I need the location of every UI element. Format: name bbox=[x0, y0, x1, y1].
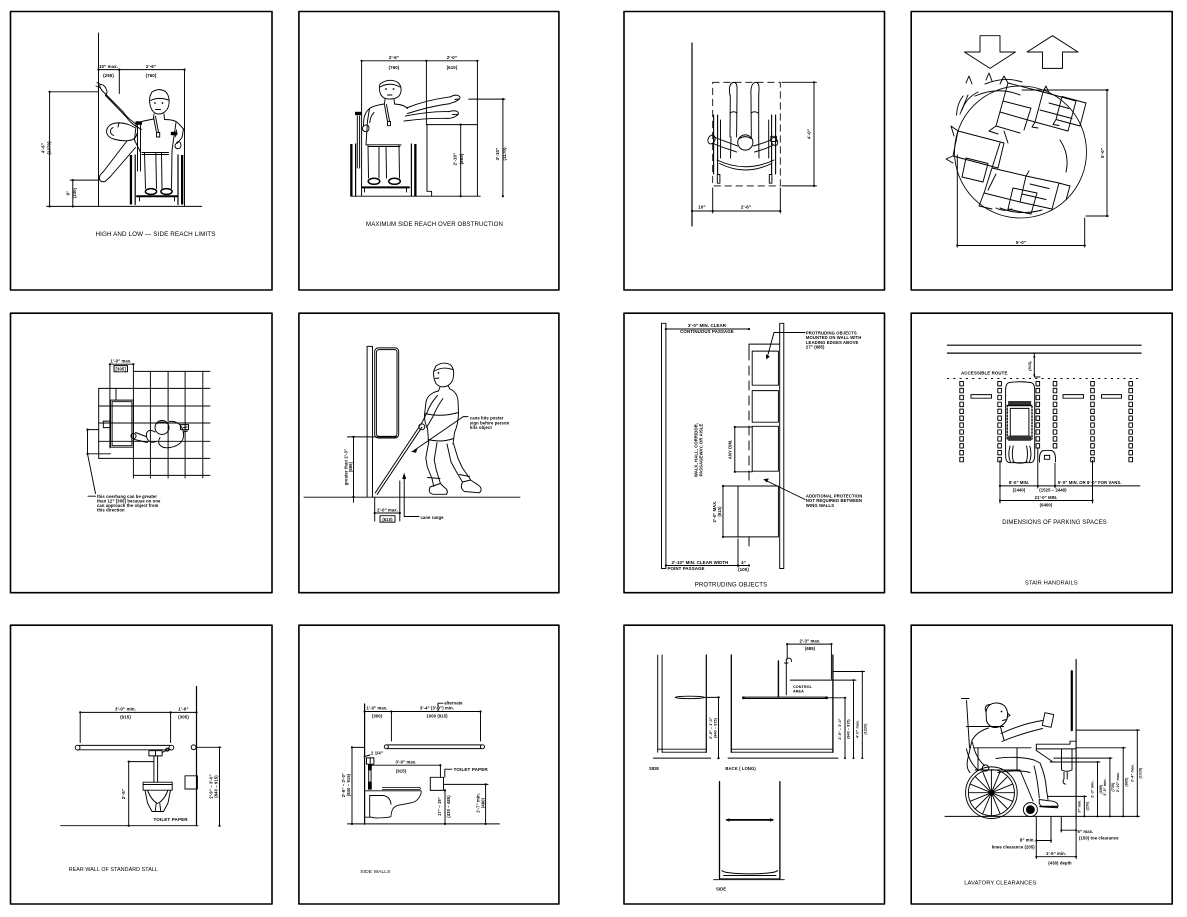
svg-text:SIDE: SIDE bbox=[649, 766, 659, 771]
svg-text:17” – 19”: 17” – 19” bbox=[437, 797, 442, 816]
svg-text:hits object: hits object bbox=[470, 425, 493, 430]
svg-text:4”: 4” bbox=[741, 560, 746, 565]
svg-text:2’-5”: 2’-5” bbox=[121, 789, 126, 799]
svg-text:4’-0” max.: 4’-0” max. bbox=[856, 720, 860, 738]
svg-text:DIMENSIONS OF PARKING SPACES: DIMENSIONS OF PARKING SPACES bbox=[1002, 520, 1107, 526]
svg-text:TOILET PAPER: TOILET PAPER bbox=[454, 767, 489, 772]
svg-text:(300): (300) bbox=[372, 713, 383, 718]
svg-text:8’-0” MIN.: 8’-0” MIN. bbox=[1009, 480, 1029, 485]
svg-text:(915): (915) bbox=[120, 715, 131, 720]
svg-text:1’-0”: 1’-0” bbox=[178, 707, 188, 712]
svg-text:SIDE WALLS: SIDE WALLS bbox=[360, 869, 391, 875]
svg-text:(610): (610) bbox=[382, 517, 393, 522]
svg-text:(840 – 915): (840 – 915) bbox=[213, 775, 218, 798]
svg-text:2’-5” min.: 2’-5” min. bbox=[1103, 778, 1107, 795]
svg-text:(1370): (1370) bbox=[47, 141, 52, 155]
svg-text:ACCESSIBLE ROUTE: ACCESSIBLE ROUTE bbox=[961, 371, 1008, 376]
svg-text:(915): (915) bbox=[396, 768, 407, 773]
svg-text:alternate: alternate bbox=[444, 701, 463, 706]
svg-text:2 1/4”: 2 1/4” bbox=[371, 751, 383, 756]
svg-text:ANY DIM.: ANY DIM. bbox=[728, 440, 733, 460]
svg-text:3’-0” min.: 3’-0” min. bbox=[115, 707, 136, 712]
svg-text:8” min.: 8” min. bbox=[1020, 837, 1035, 842]
svg-text:2’-9” – 3’-0”: 2’-9” – 3’-0” bbox=[709, 717, 713, 739]
svg-text:3’-10”: 3’-10” bbox=[495, 148, 500, 161]
svg-text:cane range: cane range bbox=[421, 515, 445, 520]
svg-text:4’-0”: 4’-0” bbox=[807, 129, 812, 139]
svg-text:(1015): (1015) bbox=[1139, 767, 1143, 779]
svg-text:BACK ( LONG): BACK ( LONG) bbox=[725, 766, 756, 771]
svg-text:1’-5” min.: 1’-5” min. bbox=[1046, 851, 1066, 856]
svg-text:2’-9” – 3’-0”: 2’-9” – 3’-0” bbox=[838, 718, 842, 739]
svg-text:6” max.: 6” max. bbox=[1078, 829, 1094, 834]
svg-text:2’-6”: 2’-6” bbox=[146, 64, 156, 69]
svg-text:1’-0” max.: 1’-0” max. bbox=[110, 358, 131, 363]
svg-text:PASSAGEWAY, OR AISLE: PASSAGEWAY, OR AISLE bbox=[699, 423, 704, 476]
svg-text:2’-3” max.: 2’-3” max. bbox=[799, 638, 820, 643]
svg-text:1’-0” max.: 1’-0” max. bbox=[366, 706, 387, 711]
svg-text:(2440): (2440) bbox=[1013, 488, 1026, 493]
svg-text:10”: 10” bbox=[698, 205, 705, 210]
svg-text:(610): (610) bbox=[717, 506, 722, 517]
svg-text:9”: 9” bbox=[66, 191, 71, 196]
svg-text:(6400): (6400) bbox=[1040, 502, 1053, 507]
svg-text:4’-6”: 4’-6” bbox=[40, 143, 45, 153]
svg-text:3’-0” max.: 3’-0” max. bbox=[395, 759, 416, 764]
svg-text:2’-10”: 2’-10” bbox=[452, 153, 457, 166]
svg-text:(430) depth: (430) depth bbox=[1048, 860, 1072, 865]
svg-text:2’-10” max.: 2’-10” max. bbox=[1116, 772, 1120, 792]
svg-text:(480): (480) bbox=[480, 797, 485, 808]
svg-text:(686): (686) bbox=[348, 461, 353, 472]
svg-text:10” max.: 10” max. bbox=[99, 64, 118, 69]
svg-text:this direction: this direction bbox=[97, 508, 125, 513]
svg-text:(840 – 915): (840 – 915) bbox=[346, 773, 351, 796]
svg-text:(735): (735) bbox=[1111, 782, 1115, 792]
svg-text:5’-0”: 5’-0” bbox=[1100, 148, 1105, 158]
svg-text:WING WALLS: WING WALLS bbox=[806, 503, 834, 508]
svg-text:(760): (760) bbox=[146, 73, 157, 78]
svg-text:1000 (915): 1000 (915) bbox=[426, 713, 448, 718]
svg-text:(100): (100) bbox=[738, 567, 749, 572]
svg-text:(230): (230) bbox=[72, 187, 77, 198]
svg-text:(1170): (1170) bbox=[502, 147, 507, 160]
svg-text:2’-10” MIN. CLEAR WIDTH: 2’-10” MIN. CLEAR WIDTH bbox=[672, 560, 729, 565]
svg-text:LAVATORY CLEARANCES: LAVATORY CLEARANCES bbox=[964, 881, 1036, 887]
svg-text:2’-6”: 2’-6” bbox=[389, 55, 399, 60]
svg-text:(230): (230) bbox=[1086, 801, 1090, 811]
svg-text:(430 – 485): (430 – 485) bbox=[446, 795, 451, 818]
svg-text:(255): (255) bbox=[103, 73, 114, 78]
svg-text:(685): (685) bbox=[805, 646, 816, 651]
svg-text:(840 – 915): (840 – 915) bbox=[713, 717, 717, 738]
svg-text:TOILET PAPER: TOILET PAPER bbox=[153, 817, 188, 822]
svg-text:(760): (760) bbox=[389, 65, 400, 70]
svg-text:SIDE: SIDE bbox=[716, 887, 726, 892]
svg-text:2’-3” min.: 2’-3” min. bbox=[1091, 780, 1095, 797]
svg-text:STAIR HANDRAILS: STAIR HANDRAILS bbox=[1025, 581, 1078, 587]
svg-text:PROTRUDING OBJECTS: PROTRUDING OBJECTS bbox=[695, 582, 768, 589]
svg-text:(305): (305) bbox=[178, 715, 189, 720]
svg-text:(840 – 915): (840 – 915) bbox=[847, 719, 851, 739]
svg-text:27” (685): 27” (685) bbox=[806, 345, 825, 350]
svg-text:2’-0” max.: 2’-0” max. bbox=[377, 508, 398, 513]
svg-text:POINT PASSAGE: POINT PASSAGE bbox=[667, 566, 704, 571]
svg-text:2’-0”: 2’-0” bbox=[447, 55, 457, 60]
svg-text:21’-0” MIN.: 21’-0” MIN. bbox=[1035, 495, 1058, 500]
svg-text:(915): (915) bbox=[1028, 361, 1032, 371]
svg-text:(610): (610) bbox=[447, 65, 458, 70]
svg-text:HIGH AND LOW — SIDE REACH LI: HIGH AND LOW — SIDE REACH LIMITS bbox=[95, 231, 215, 238]
svg-text:knee clearance (205): knee clearance (205) bbox=[992, 845, 1035, 850]
svg-text:CONTINUOUS PASSAGE: CONTINUOUS PASSAGE bbox=[680, 329, 734, 334]
svg-text:5’-0”: 5’-0” bbox=[1016, 240, 1026, 245]
svg-text:MAXIMUM SIDE REACH OVER OBSTRU: MAXIMUM SIDE REACH OVER OBSTRUCTION bbox=[366, 221, 503, 228]
svg-text:REAR WALL OF STANDARD STALL: REAR WALL OF STANDARD STALL bbox=[69, 867, 158, 873]
svg-text:(865): (865) bbox=[459, 153, 464, 164]
svg-text:3’-4” max.: 3’-4” max. bbox=[1130, 764, 1134, 782]
svg-text:3’-0” MIN. CLEAR: 3’-0” MIN. CLEAR bbox=[688, 323, 727, 328]
svg-text:9” min.: 9” min. bbox=[1077, 800, 1081, 813]
svg-text:(1220): (1220) bbox=[864, 723, 868, 735]
svg-text:(150) toe clearance: (150) toe clearance bbox=[1079, 835, 1119, 840]
svg-text:3’-4” (3’-0”) min.: 3’-4” (3’-0”) min. bbox=[420, 706, 454, 711]
svg-text:[305]: [305] bbox=[116, 367, 127, 372]
svg-text:2’-6”: 2’-6” bbox=[741, 205, 751, 210]
svg-text:5’-0” MIN. OR 8’-0” FOR VANS.: 5’-0” MIN. OR 8’-0” FOR VANS. bbox=[1058, 480, 1122, 485]
svg-text:(865): (865) bbox=[1125, 777, 1129, 787]
svg-text:AREA: AREA bbox=[793, 689, 804, 693]
svg-text:(1525 – 2440): (1525 – 2440) bbox=[1039, 488, 1067, 493]
